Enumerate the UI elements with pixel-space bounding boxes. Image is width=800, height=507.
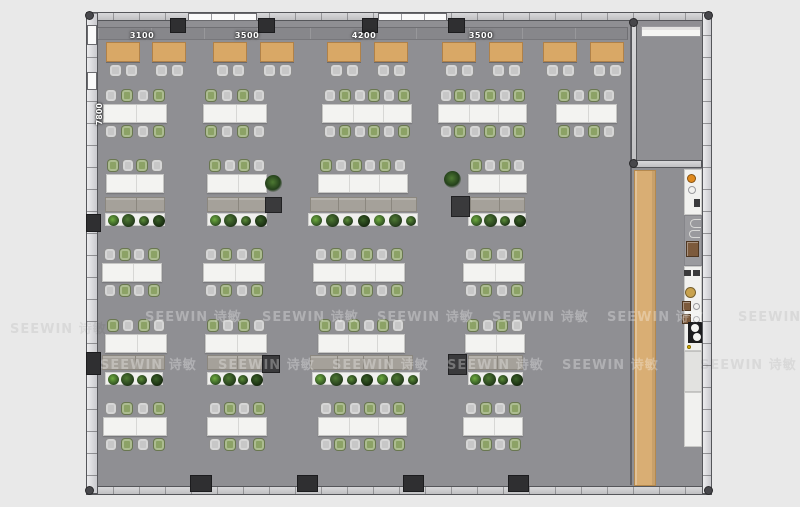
watermark: SEEWIN 诗敏 <box>447 354 544 373</box>
watermark: SEEWIN 诗敏 <box>218 354 315 373</box>
watermark: SEEWIN 诗敏 <box>100 354 197 373</box>
watermark-layer: SEEWIN 诗敏SEEWIN 诗敏SEEWIN 诗敏SEEWIN 诗敏SEEW… <box>0 0 800 507</box>
watermark: SEEWIN 诗敏 <box>145 306 242 325</box>
watermark: SEEWIN 诗敏 <box>332 354 429 373</box>
watermark: SEEWIN 诗敏 <box>262 306 359 325</box>
watermark: SEEWIN 诗敏 <box>492 306 589 325</box>
watermark: SEEWIN 诗敏 <box>607 306 704 325</box>
watermark: SEEWIN 诗敏 <box>10 318 107 337</box>
floorplan-canvas: 31003500420035007800 SEEWIN 诗敏SEEWIN 诗敏S… <box>0 0 800 507</box>
watermark: SEEWIN 诗敏 <box>738 306 800 325</box>
watermark: SEEWIN 诗敏 <box>562 354 659 373</box>
floorplan-page: 31003500420035007800 SEEWIN 诗敏SEEWIN 诗敏S… <box>0 0 800 507</box>
watermark: SEEWIN 诗敏 <box>700 354 797 373</box>
watermark: SEEWIN 诗敏 <box>377 306 474 325</box>
